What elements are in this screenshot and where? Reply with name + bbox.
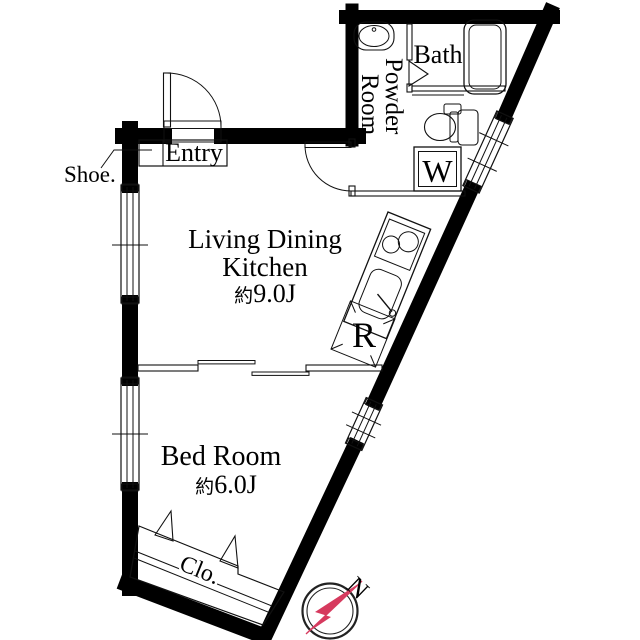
entry-door-panel bbox=[164, 73, 171, 127]
compass: N bbox=[303, 571, 375, 639]
bedroom-label: Bed Room bbox=[161, 441, 282, 472]
closet-door-mark-2 bbox=[220, 536, 238, 568]
toilet-bowl bbox=[425, 114, 456, 141]
ldk-area-value: 9.0J bbox=[253, 279, 296, 308]
wall-diagonal-upper bbox=[505, 12, 550, 115]
powder-ldk-partition bbox=[351, 191, 465, 196]
powder-room-label-line2: Room bbox=[356, 74, 383, 136]
ldk-area-prefix: 約 bbox=[234, 285, 253, 307]
powder-room-door bbox=[305, 142, 351, 191]
sliding-door-panel-2 bbox=[252, 372, 309, 375]
ldk-label-line2: Kitchen bbox=[222, 252, 308, 282]
sliding-door-panel-1 bbox=[198, 361, 255, 364]
refrigerator-label: R bbox=[352, 315, 376, 355]
washbasin-faucet bbox=[372, 28, 376, 32]
bathtub-inner bbox=[469, 25, 501, 89]
washbasin-counter bbox=[354, 22, 394, 50]
washbasin-bowl bbox=[359, 26, 389, 47]
bedroom-area-label: 約6.0J bbox=[195, 470, 257, 499]
compass-north-label: N bbox=[341, 571, 375, 605]
wall-diagonal-lower bbox=[265, 447, 354, 636]
entry-door-arc bbox=[167, 73, 221, 127]
bedroom-area-prefix: 約 bbox=[195, 476, 214, 498]
toilet-seat-hinge bbox=[450, 112, 458, 142]
refrigerator-corner-mark-bl bbox=[331, 341, 343, 353]
refrigerator-space: R bbox=[331, 301, 395, 367]
ldk-bedroom-partition-left bbox=[138, 365, 198, 371]
washing-machine-label: W bbox=[422, 153, 453, 189]
window-bedroom-left bbox=[112, 377, 148, 491]
ldk-label-line1: Living Dining bbox=[188, 224, 342, 254]
bathtub-outer bbox=[464, 20, 506, 94]
wall-bottom bbox=[127, 584, 261, 635]
powder-room: Powder Room bbox=[354, 22, 407, 136]
exterior-walls bbox=[123, 10, 553, 636]
shoe-cabinet-label: Shoe. bbox=[64, 162, 116, 187]
bath-room: Bath bbox=[413, 20, 506, 94]
wall-diagonal-middle bbox=[375, 190, 471, 401]
entry-label: Entry bbox=[165, 138, 223, 167]
washing-machine: W bbox=[414, 147, 461, 191]
powder-door-arc bbox=[305, 145, 351, 191]
kitchen-faucet-arm bbox=[373, 294, 396, 312]
bath-partition-upper bbox=[407, 24, 412, 60]
powder-room-label-line1: Powder bbox=[380, 58, 407, 135]
ldk-labels: Living Dining Kitchen 約9.0J bbox=[188, 224, 342, 308]
toilet-tank bbox=[458, 110, 478, 145]
floor-plan: Entry Shoe. Powder Room Bath W bbox=[0, 0, 640, 640]
window-ldk-left bbox=[112, 184, 148, 304]
bedroom-area-value: 6.0J bbox=[214, 470, 257, 499]
toilet bbox=[425, 104, 479, 145]
interior-partitions bbox=[138, 24, 505, 375]
ldk-bedroom-partition-right bbox=[306, 365, 382, 371]
bath-label: Bath bbox=[413, 40, 462, 69]
floor-plan-page: Entry Shoe. Powder Room Bath W bbox=[0, 0, 640, 640]
ldk-area-label: 約9.0J bbox=[234, 279, 296, 308]
refrigerator-corner-mark-tl bbox=[347, 301, 359, 313]
bedroom-labels: Bed Room 約6.0J bbox=[161, 441, 282, 499]
